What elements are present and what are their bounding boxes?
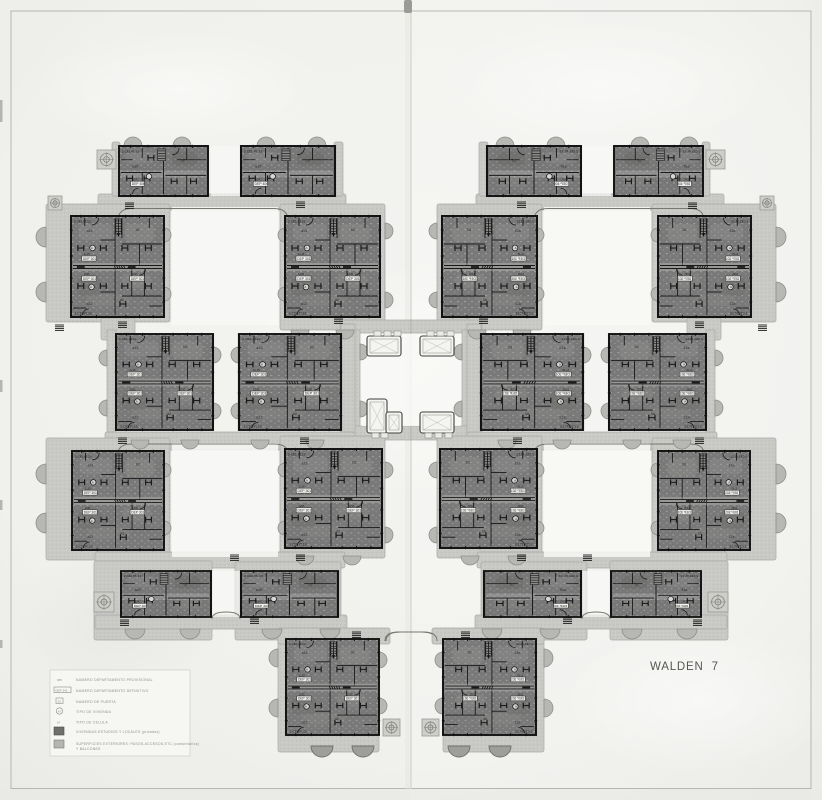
- svg-text:Y BALCONES: Y BALCONES: [76, 747, 101, 751]
- svg-text:065: 065: [57, 678, 62, 682]
- svg-text:SUPERFICIES EXTERIORES: PASOS,: SUPERFICIES EXTERIORES: PASOS,ACCESOS,ET…: [76, 742, 199, 746]
- svg-text:NUMERO DE PUERTA: NUMERO DE PUERTA: [76, 700, 116, 704]
- svg-text:WALDEN 7: WALDEN 7: [650, 661, 719, 673]
- svg-text:20: 20: [58, 699, 62, 703]
- svg-text:NUMERO DEPARTAMENTO PROVISIONA: NUMERO DEPARTAMENTO PROVISIONAL: [76, 678, 153, 682]
- svg-text:TIPO DE CELULA: TIPO DE CELULA: [76, 721, 108, 725]
- svg-text:TIPO DE VIVIENDA: TIPO DE VIVIENDA: [76, 710, 112, 714]
- svg-text:DEP 341: DEP 341: [56, 688, 68, 692]
- svg-text:VIVIENDAS ESTUDIOS Y LOCALES (: VIVIENDAS ESTUDIOS Y LOCALES (privados): [76, 730, 160, 734]
- svg-text:b7: b7: [57, 721, 61, 725]
- svg-text:A7: A7: [58, 709, 62, 713]
- svg-text:NUMERO DEPARTAMENTO DEFINITIVO: NUMERO DEPARTAMENTO DEFINITIVO: [76, 689, 149, 693]
